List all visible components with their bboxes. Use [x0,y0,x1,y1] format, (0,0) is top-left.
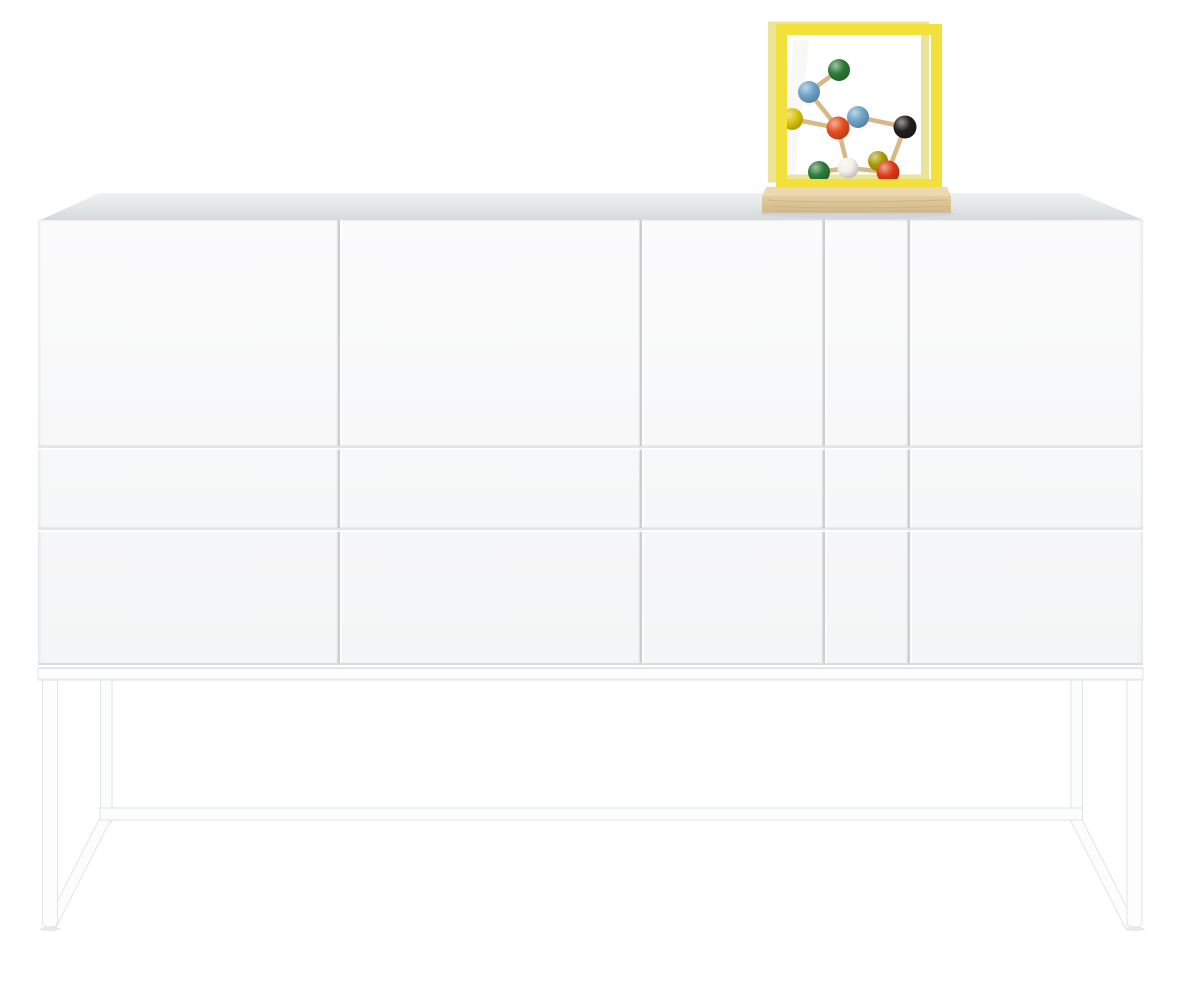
overlay-graphics [0,0,1181,987]
base-top-rail-shade [39,678,1142,680]
front-right-leg [1127,669,1142,927]
product-photo-scene [0,0,1181,987]
molecule-ball-blue-upper-left [798,81,820,103]
molecule-ball-green-top [828,59,850,81]
wood-plinth-top [762,187,951,196]
base-frame [38,667,1145,931]
back-left-leg [101,676,113,822]
display-cube [759,26,955,219]
plinth-contact-shadow [762,212,951,214]
wood-plinth-front [762,196,951,213]
molecule-ball-blue-center [847,106,869,128]
front-left-leg [43,669,58,927]
rear-floor-stretcher [100,808,1083,820]
glass-reflection-streak [785,40,809,175]
molecule-ball-white-lower [838,158,859,179]
right-side-runner [1070,815,1134,927]
molecule-ball-black-right [894,116,917,139]
molecule-ball-orange-center [827,117,850,140]
back-right-leg [1071,676,1083,822]
